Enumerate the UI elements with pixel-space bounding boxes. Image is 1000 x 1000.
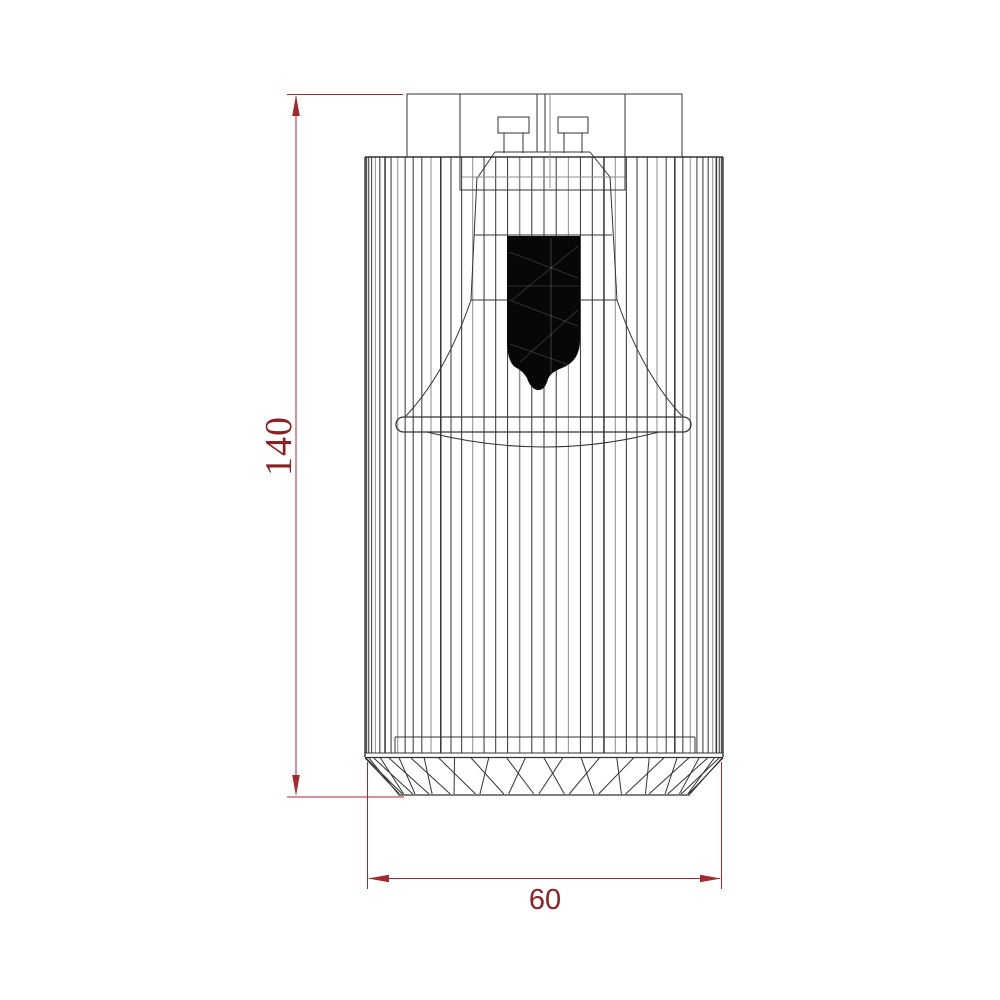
technical-drawing: 140 60 <box>0 0 1000 1000</box>
bulb <box>507 236 580 390</box>
height-dimension: 140 <box>258 95 404 798</box>
bracket-inner <box>460 94 625 190</box>
bottom-louver-ring <box>365 758 723 795</box>
holder-neck-right <box>610 177 617 300</box>
drawing-canvas: 140 60 <box>0 0 1000 1000</box>
holder-slant-left <box>478 152 495 177</box>
holder-neck-left <box>471 177 477 300</box>
width-arrow-left <box>368 875 389 883</box>
height-arrow-up <box>292 95 300 116</box>
terminal-right <box>558 117 588 133</box>
width-dimension-label: 60 <box>529 884 561 916</box>
width-arrow-right <box>700 875 721 883</box>
terminal-left <box>498 117 529 133</box>
holder-slant-right <box>590 152 610 177</box>
height-arrow-down <box>292 775 300 796</box>
louver-slats <box>365 758 723 794</box>
height-dimension-label: 140 <box>258 416 300 476</box>
